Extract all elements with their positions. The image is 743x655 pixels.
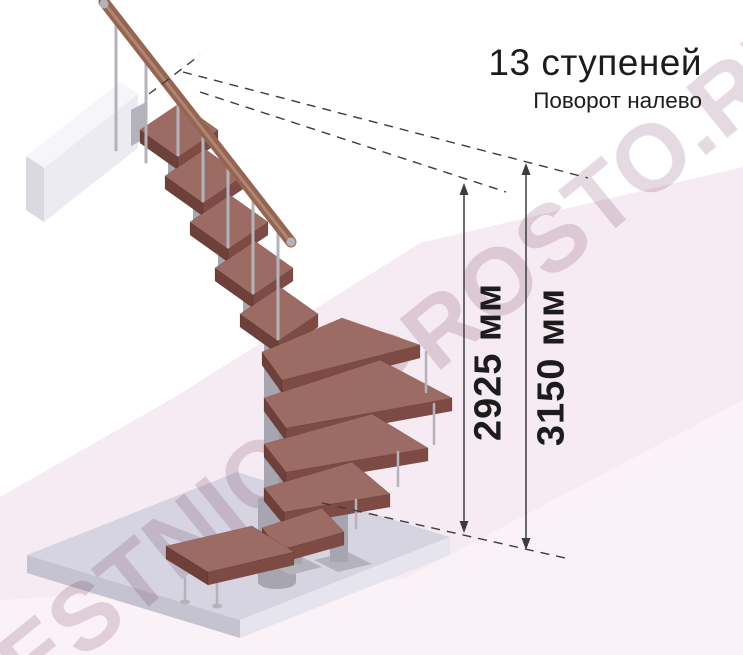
dimension-line-3150 [522,163,531,550]
steps-count-title: 13 ступеней [488,42,702,84]
dimension-label-2925: 2925 мм [468,283,511,441]
dimension-label-3150: 3150 мм [531,288,574,446]
arrow-down-icon [460,521,469,533]
arrow-up-icon [522,163,531,175]
stair-diagram: LESTNICA-PROSTO.RU [0,0,743,655]
arrow-up-icon [460,183,469,195]
extension-lines-dashed [149,55,588,558]
turn-direction-subtitle: Поворот налево [533,88,702,114]
arrow-down-icon [522,538,531,550]
